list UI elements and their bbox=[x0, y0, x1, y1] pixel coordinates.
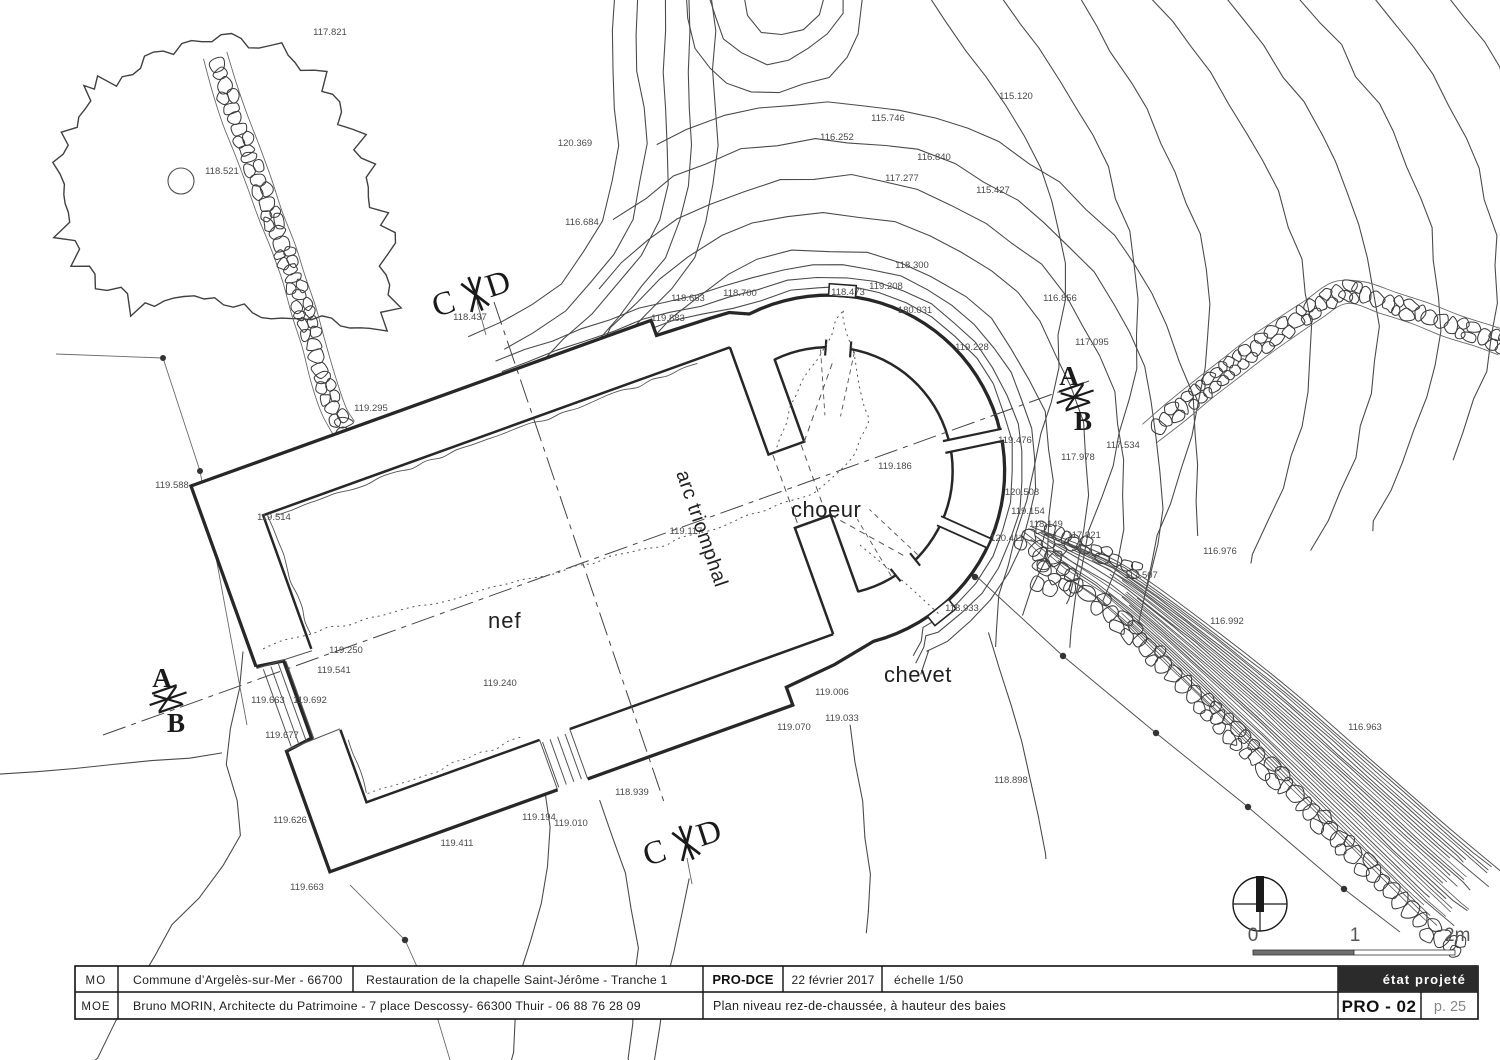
svg-text:chevet: chevet bbox=[884, 662, 952, 687]
svg-text:nef: nef bbox=[488, 608, 522, 633]
svg-text:117.921: 117.921 bbox=[1067, 530, 1101, 541]
svg-text:119.250: 119.250 bbox=[329, 645, 363, 656]
svg-text:115.427: 115.427 bbox=[976, 185, 1010, 196]
svg-text:115.120: 115.120 bbox=[999, 91, 1033, 102]
svg-text:117.821: 117.821 bbox=[313, 27, 347, 38]
svg-text:117.277: 117.277 bbox=[885, 173, 919, 184]
svg-text:118.700: 118.700 bbox=[723, 288, 757, 299]
svg-text:119.883: 119.883 bbox=[651, 313, 685, 324]
svg-text:117.534: 117.534 bbox=[1106, 440, 1140, 451]
svg-text:116.976: 116.976 bbox=[1203, 546, 1237, 557]
svg-text:Bruno MORIN, Architecte du Pat: Bruno MORIN, Architecte du Patrimoine - … bbox=[133, 999, 641, 1013]
svg-text:échelle 1/50: échelle 1/50 bbox=[894, 973, 964, 987]
svg-text:118.663: 118.663 bbox=[671, 293, 705, 304]
svg-text:120.369: 120.369 bbox=[558, 138, 592, 149]
svg-text:118.898: 118.898 bbox=[994, 775, 1028, 786]
svg-text:119.677: 119.677 bbox=[265, 730, 299, 741]
svg-text:120.508: 120.508 bbox=[1005, 487, 1039, 498]
svg-text:116.963: 116.963 bbox=[1348, 722, 1382, 733]
svg-text:119.070: 119.070 bbox=[777, 722, 811, 733]
svg-text:117.507: 117.507 bbox=[1124, 570, 1158, 581]
svg-text:2m: 2m bbox=[1444, 925, 1470, 946]
svg-text:116.856: 116.856 bbox=[1043, 293, 1077, 304]
svg-text:120.411: 120.411 bbox=[990, 533, 1024, 544]
svg-text:état projeté: état projeté bbox=[1383, 972, 1466, 987]
svg-text:118.933: 118.933 bbox=[945, 603, 979, 614]
svg-text:PRO-DCE: PRO-DCE bbox=[712, 972, 773, 987]
svg-text:118.149: 118.149 bbox=[1029, 519, 1063, 530]
svg-text:0: 0 bbox=[1248, 925, 1259, 946]
svg-text:Restauration de la chapelle Sa: Restauration de la chapelle Saint-Jérôme… bbox=[366, 973, 668, 987]
svg-text:119.006: 119.006 bbox=[815, 687, 849, 698]
svg-text:119.186: 119.186 bbox=[878, 461, 912, 472]
svg-text:119.663: 119.663 bbox=[251, 695, 285, 706]
svg-text:choeur: choeur bbox=[791, 497, 861, 522]
svg-text:119.010: 119.010 bbox=[554, 818, 588, 829]
svg-text:119.208: 119.208 bbox=[869, 281, 903, 292]
svg-text:22 février 2017: 22 février 2017 bbox=[791, 973, 874, 987]
svg-text:119.476: 119.476 bbox=[998, 435, 1032, 446]
svg-text:119.663: 119.663 bbox=[290, 882, 324, 893]
svg-text:118.300: 118.300 bbox=[895, 260, 929, 271]
svg-text:Commune d’Argelès-sur-Mer - 66: Commune d’Argelès-sur-Mer - 66700 bbox=[133, 973, 343, 987]
svg-text:116.992: 116.992 bbox=[1210, 616, 1244, 627]
svg-text:180.031: 180.031 bbox=[898, 305, 932, 316]
svg-text:119.228: 119.228 bbox=[955, 342, 989, 353]
svg-text:119.033: 119.033 bbox=[825, 713, 859, 724]
svg-text:118.521: 118.521 bbox=[205, 166, 239, 177]
svg-text:Plan niveau rez-de-chaussée, à: Plan niveau rez-de-chaussée, à hauteur d… bbox=[713, 999, 1006, 1013]
svg-text:116.684: 116.684 bbox=[565, 217, 599, 228]
svg-text:1: 1 bbox=[1350, 925, 1361, 946]
svg-text:118.939: 118.939 bbox=[615, 787, 649, 798]
svg-text:119.295: 119.295 bbox=[354, 403, 388, 414]
svg-text:116.252: 116.252 bbox=[820, 132, 854, 143]
svg-text:116.840: 116.840 bbox=[917, 152, 951, 163]
svg-text:119.411: 119.411 bbox=[441, 838, 474, 849]
svg-text:118.473: 118.473 bbox=[831, 287, 865, 298]
svg-text:119.514: 119.514 bbox=[257, 512, 291, 523]
svg-text:119.194: 119.194 bbox=[522, 812, 556, 823]
svg-text:117.978: 117.978 bbox=[1061, 452, 1095, 463]
svg-text:117.095: 117.095 bbox=[1075, 337, 1109, 348]
svg-text:MOE: MOE bbox=[81, 1001, 110, 1013]
svg-text:PRO - 02: PRO - 02 bbox=[1342, 997, 1417, 1016]
svg-text:B: B bbox=[1074, 406, 1092, 436]
svg-text:119.240: 119.240 bbox=[483, 678, 517, 689]
svg-text:p. 25: p. 25 bbox=[1434, 999, 1466, 1015]
svg-text:MO: MO bbox=[86, 975, 107, 987]
svg-text:119.154: 119.154 bbox=[1011, 506, 1045, 517]
svg-text:119.588: 119.588 bbox=[155, 480, 189, 491]
svg-text:119.626: 119.626 bbox=[273, 815, 307, 826]
svg-text:119.541: 119.541 bbox=[317, 665, 351, 676]
svg-text:115.746: 115.746 bbox=[871, 113, 905, 124]
svg-text:B: B bbox=[167, 708, 185, 738]
svg-text:119.692: 119.692 bbox=[293, 695, 327, 706]
